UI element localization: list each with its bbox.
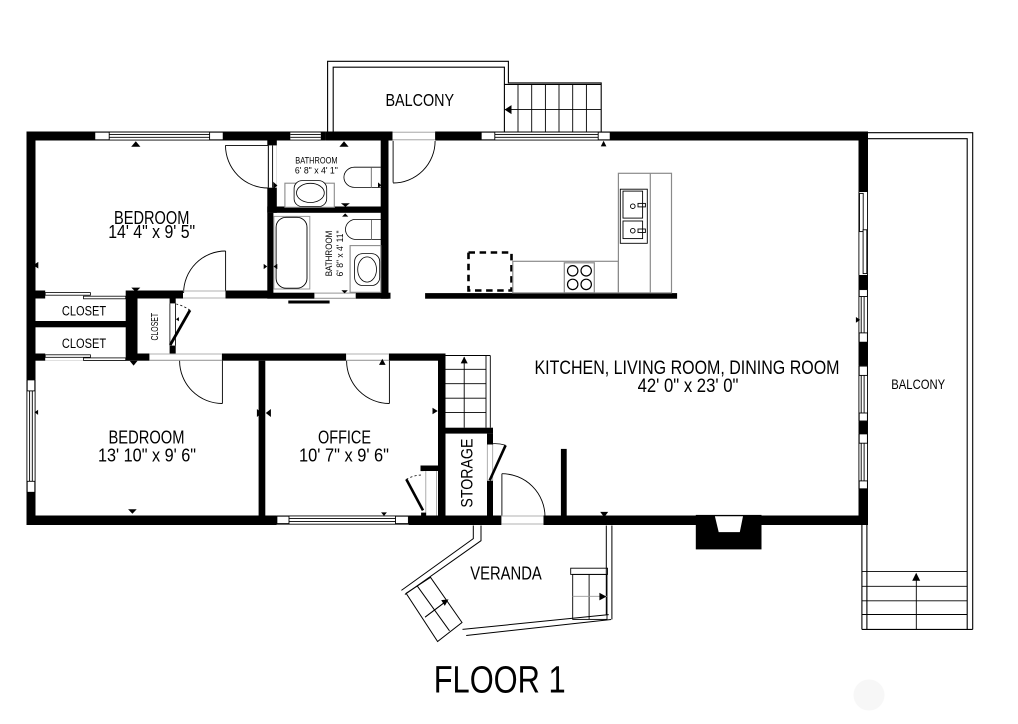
svg-text:BALCONY: BALCONY	[891, 376, 945, 392]
svg-text:13' 10" x 9' 6": 13' 10" x 9' 6"	[98, 446, 196, 466]
svg-text:10' 7" x 9' 6": 10' 7" x 9' 6"	[299, 446, 389, 466]
svg-text:OFFICE: OFFICE	[318, 428, 371, 448]
svg-text:BATHROOM: BATHROOM	[295, 155, 337, 165]
svg-text:CLOSET: CLOSET	[62, 303, 106, 318]
svg-text:14' 4" x 9' 5": 14' 4" x 9' 5"	[108, 222, 195, 242]
svg-text:STORAGE: STORAGE	[458, 439, 477, 508]
svg-text:FLOOR 1: FLOOR 1	[434, 660, 566, 702]
svg-text:BALCONY: BALCONY	[385, 90, 454, 110]
svg-text:BEDROOM: BEDROOM	[109, 428, 185, 448]
svg-text:CLOSET: CLOSET	[62, 336, 106, 351]
svg-text:6' 8" x 4' 1": 6' 8" x 4' 1"	[295, 166, 338, 176]
svg-text:BATHROOM: BATHROOM	[324, 231, 334, 277]
svg-text:6' 8" x 4' 11": 6' 8" x 4' 11"	[335, 231, 345, 277]
svg-text:CLOSET: CLOSET	[150, 313, 161, 341]
svg-text:VERANDA: VERANDA	[470, 563, 542, 583]
svg-text:42' 0" x 23' 0": 42' 0" x 23' 0"	[638, 375, 739, 397]
